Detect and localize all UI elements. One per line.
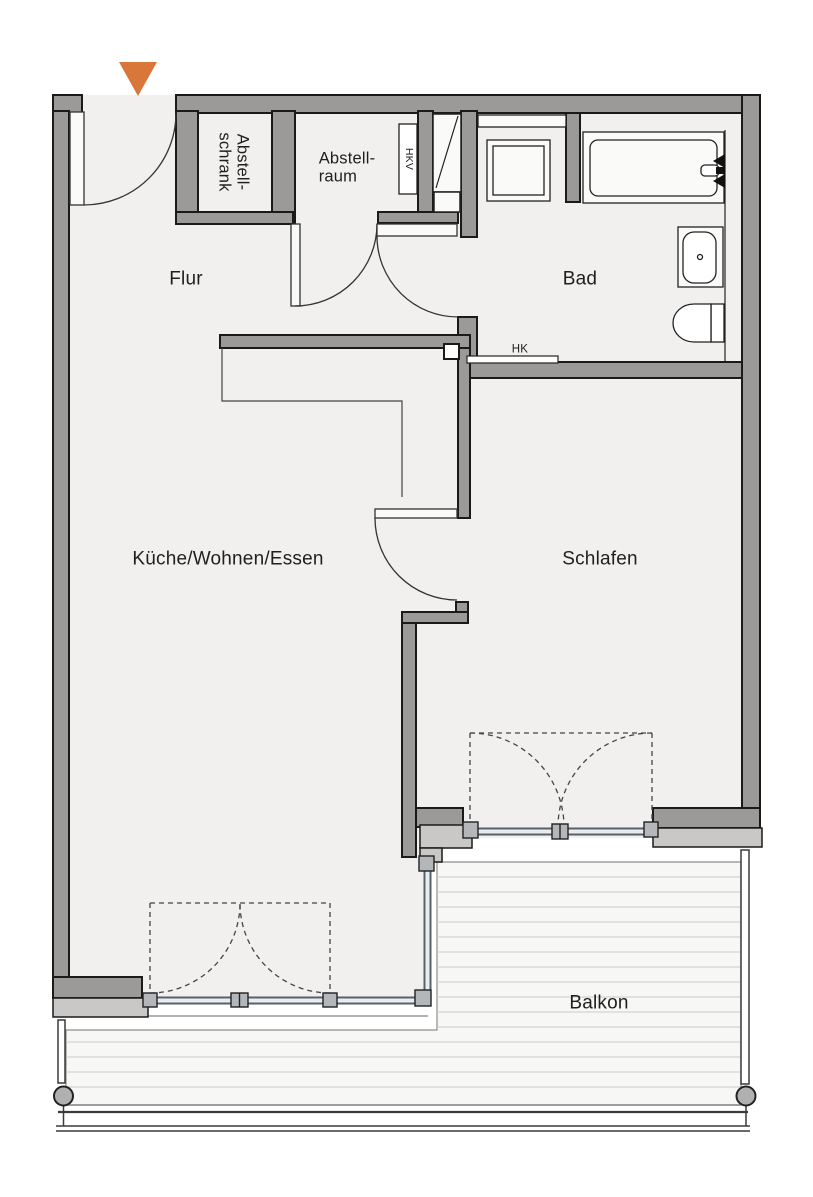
bathtub-faucet-base xyxy=(716,167,725,174)
room-label-abstellschrank: Abstell- schrank xyxy=(215,132,252,191)
shower-tray xyxy=(487,140,550,201)
railing-post-links xyxy=(64,1106,747,1126)
balcony-post-left xyxy=(54,1087,73,1106)
entrance-marker-icon xyxy=(119,62,157,96)
duct-shaft xyxy=(433,114,461,212)
room-label-schlafen: Schlafen xyxy=(562,548,638,569)
washbasin xyxy=(683,232,716,283)
railing-bottom-double-rail xyxy=(56,1126,750,1131)
floor-plan-drawing xyxy=(0,0,813,1197)
hk-label: HK xyxy=(512,344,528,357)
storage-room-door-leaf xyxy=(291,224,300,306)
bedroom-door-leaf xyxy=(375,509,457,518)
shower-screen xyxy=(478,115,566,127)
room-label-balkon: Balkon xyxy=(569,992,628,1013)
bathroom-door-leaf xyxy=(377,224,457,236)
room-label-abstellraum: Abstell- raum xyxy=(319,150,376,187)
room-label-kueche-wohnen-essen: Küche/Wohnen/Essen xyxy=(132,548,323,569)
railing-right-segment xyxy=(741,850,749,1084)
hkv-label: HKV xyxy=(402,148,414,170)
toilet-bowl xyxy=(673,304,711,342)
railing-left-segment xyxy=(58,1020,65,1083)
balcony-post-right xyxy=(737,1087,756,1106)
toilet-tank xyxy=(711,304,724,342)
entrance-door-leaf xyxy=(70,112,84,205)
room-label-flur: Flur xyxy=(169,268,203,289)
radiator xyxy=(467,356,558,363)
wall-niche-detail xyxy=(444,344,459,359)
room-label-bad: Bad xyxy=(563,268,597,289)
floor-plan: Flur Abstell- schrank Abstell- raum HKV … xyxy=(0,0,813,1197)
